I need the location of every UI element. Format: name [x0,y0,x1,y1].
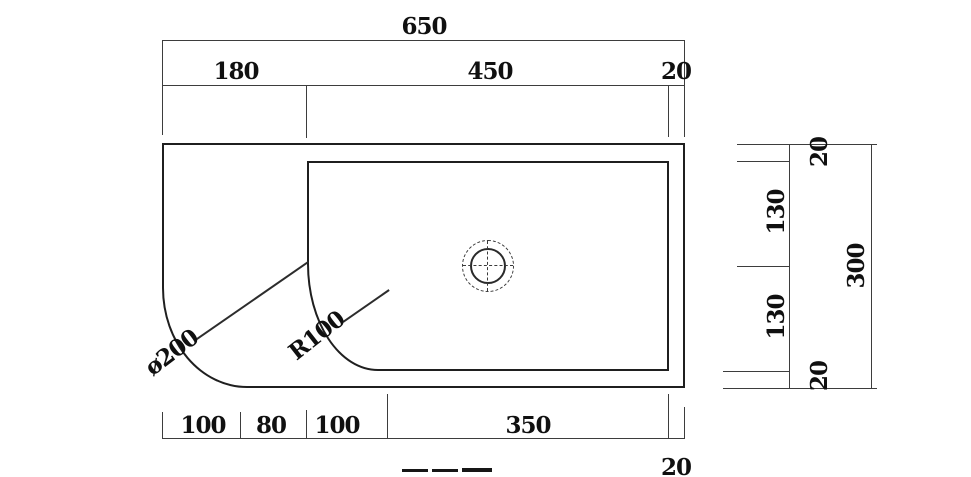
drain-centerline-horizontal [463,265,513,266]
dim-line-top-overall [162,40,685,41]
tick-right-inner-bottom [723,371,790,372]
dim-label-80: 80 [236,414,306,438]
dim-label-300: 300 [845,231,869,301]
dim-label-650: 650 [389,15,459,39]
ext-line-bottom-4 [387,394,388,438]
cropped-caption-stroke-3 [462,468,492,472]
tick-right-bottom [723,388,877,389]
dim-label-130-upper: 130 [765,177,789,247]
dim-label-180: 180 [201,60,271,84]
ext-line-top-450-20 [668,85,669,137]
cropped-caption-stroke-2 [432,469,458,472]
tick-right-inner-top [737,161,790,162]
drain-centerline-vertical [487,241,488,291]
tick-right-center [737,266,790,267]
dim-line-right-overall [871,144,872,388]
dim-label-350: 350 [493,414,563,438]
ext-line-bottom-5 [668,394,669,438]
ext-line-top-180-450 [306,85,307,138]
dim-line-top-segments [162,85,685,86]
dim-label-100-b: 100 [302,414,372,438]
ext-line-bottom-6 [684,407,685,438]
drain-hole-circle [470,248,506,284]
dim-label-100-a: 100 [168,414,238,438]
dim-label-20-top: 20 [641,60,711,84]
dim-label-20-right-top: 20 [808,117,832,187]
ext-line-bottom-1 [162,412,163,438]
ext-line-top-left [162,40,163,135]
cropped-caption-stroke-1 [402,469,428,472]
ext-line-top-right [684,40,685,137]
dim-label-130-lower: 130 [765,282,789,352]
dim-label-20-bottom: 20 [641,456,711,477]
dim-label-20-right-bottom: 20 [808,341,832,411]
dim-label-450: 450 [455,60,525,84]
technical-drawing-canvas: 650 180 450 20 100 80 100 350 20 20 130 … [0,0,971,477]
dim-line-bottom [162,438,685,439]
